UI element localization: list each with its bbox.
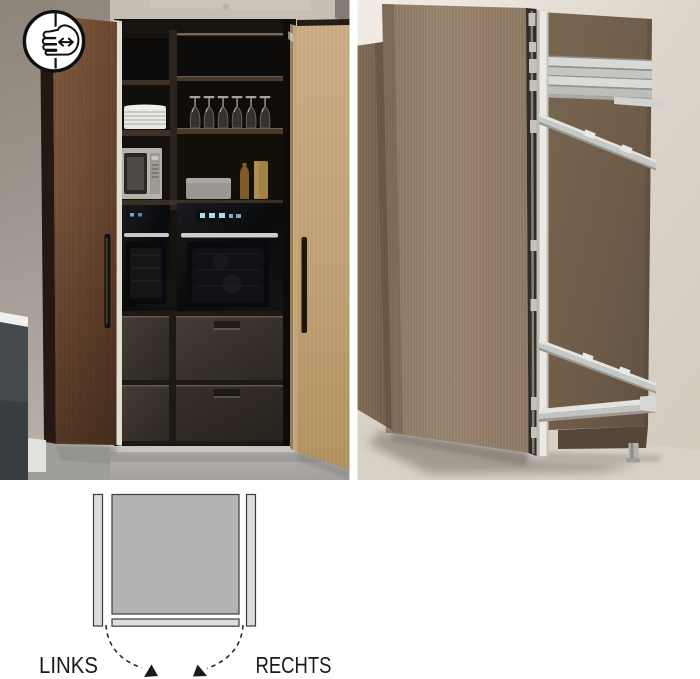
svg-text:LINKS: LINKS: [39, 652, 98, 678]
svg-text:RECHTS: RECHTS: [256, 652, 332, 678]
